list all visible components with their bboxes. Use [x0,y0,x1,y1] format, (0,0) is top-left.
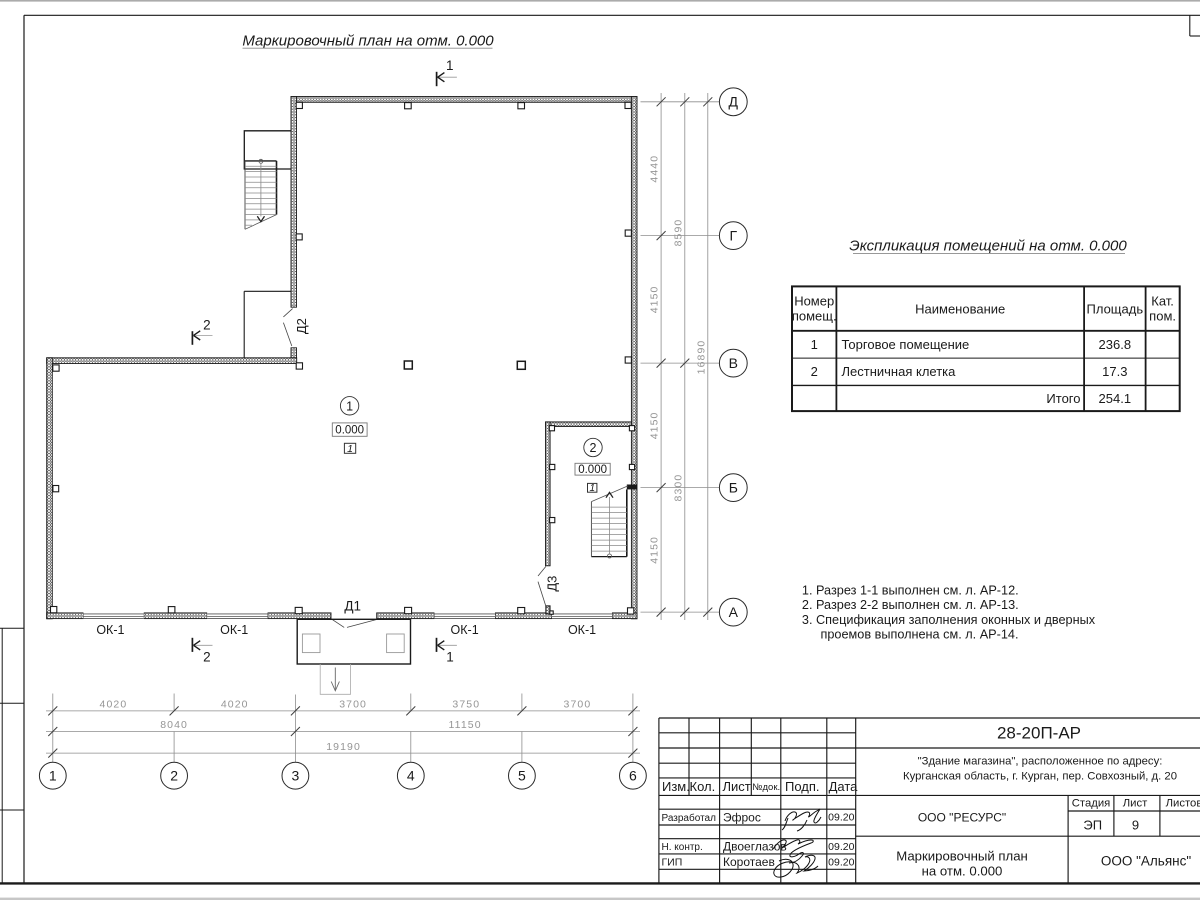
svg-text:проемов выполнена см. л. АР-14: проемов выполнена см. л. АР-14. [821,628,1019,642]
svg-text:ОК-1: ОК-1 [568,623,596,637]
svg-text:Маркировочный план: Маркировочный план [896,849,1028,864]
svg-text:0.000: 0.000 [578,464,607,476]
svg-text:Кат.: Кат. [1151,293,1174,308]
svg-text:В: В [729,355,738,371]
svg-text:Маркировочный план на отм. 0.0: Маркировочный план на отм. 0.000 [242,33,494,50]
svg-text:4020: 4020 [100,699,128,711]
svg-text:Торговое помещение: Торговое помещение [842,337,970,352]
svg-text:3. Спецификация заполнения око: 3. Спецификация заполнения оконных и две… [802,613,1096,627]
svg-text:3700: 3700 [564,699,592,711]
svg-text:ООО "РЕСУРС": ООО "РЕСУРС" [918,810,1006,824]
svg-text:2: 2 [811,364,818,379]
svg-text:Лист: Лист [723,779,751,794]
svg-text:236.8: 236.8 [1099,337,1132,352]
svg-text:3750: 3750 [452,699,480,711]
svg-text:"Здание магазина", расположенн: "Здание магазина", расположенное по адре… [918,756,1163,768]
svg-text:помещ.: помещ. [792,308,837,323]
svg-text:ГИП: ГИП [662,857,683,869]
svg-text:4150: 4150 [649,286,661,314]
svg-text:4020: 4020 [221,699,249,711]
svg-text:1: 1 [346,399,353,413]
svg-text:Д1: Д1 [344,599,361,614]
svg-text:11150: 11150 [449,719,482,731]
svg-text:Кол.: Кол. [690,779,716,794]
svg-text:Лестничная клетка: Лестничная клетка [842,364,957,379]
svg-text:Листов: Листов [1166,798,1200,810]
svg-text:2: 2 [203,650,211,665]
svg-text:Стадия: Стадия [1072,798,1111,810]
svg-text:4: 4 [407,768,415,784]
svg-text:1: 1 [446,650,454,665]
svg-text:16890: 16890 [695,340,707,375]
svg-text:ООО "Альянс": ООО "Альянс" [1101,853,1191,868]
svg-text:09.20: 09.20 [828,812,854,824]
svg-text:Подп.: Подп. [785,779,820,794]
svg-text:8040: 8040 [160,719,188,731]
svg-text:№док.: №док. [752,782,780,793]
svg-text:2. Разрез 2-2 выполнен см. л.: 2. Разрез 2-2 выполнен см. л. АР-13. [802,598,1019,612]
svg-text:3: 3 [292,768,300,784]
svg-text:Курганская область, г. Курган,: Курганская область, г. Курган, пер. Совх… [903,771,1177,783]
svg-text:1: 1 [811,337,818,352]
svg-text:1: 1 [347,443,353,455]
svg-text:Эфрос: Эфрос [723,810,761,824]
svg-text:ЭП: ЭП [1083,818,1102,833]
svg-text:09.20: 09.20 [828,841,854,853]
svg-text:Д: Д [729,94,739,110]
svg-text:Итого: Итого [1046,391,1080,406]
svg-text:Площадь: Площадь [1087,301,1144,316]
svg-text:ОК-1: ОК-1 [96,623,124,637]
svg-text:19190: 19190 [326,741,361,753]
svg-text:5: 5 [518,768,526,784]
svg-text:Г: Г [730,227,738,243]
svg-text:ОК-1: ОК-1 [451,623,479,637]
svg-text:1: 1 [446,58,454,73]
svg-text:2: 2 [170,768,178,784]
svg-text:А: А [729,604,739,620]
svg-text:пом.: пом. [1149,308,1176,323]
svg-text:Изм.: Изм. [662,779,690,794]
svg-text:Экспликация помещений на отм.: Экспликация помещений на отм. 0.000 [849,238,1127,255]
svg-text:Д2: Д2 [294,318,309,334]
svg-text:Д3: Д3 [545,576,560,592]
svg-text:17.3: 17.3 [1102,364,1127,379]
svg-text:9: 9 [1132,818,1139,833]
svg-text:4150: 4150 [649,412,661,440]
svg-text:1: 1 [49,768,57,784]
svg-text:6: 6 [629,768,637,784]
svg-text:8590: 8590 [672,219,684,247]
svg-text:1. Разрез 1-1 выполнен см. л.: 1. Разрез 1-1 выполнен см. л. АР-12. [802,583,1019,597]
svg-text:Разработал: Разработал [662,812,717,824]
svg-text:28-20П-АР: 28-20П-АР [997,724,1081,743]
svg-text:Дата: Дата [829,779,859,794]
svg-text:Наименование: Наименование [915,301,1005,316]
svg-text:8300: 8300 [672,474,684,502]
svg-text:4440: 4440 [649,155,661,183]
svg-text:Б: Б [729,479,738,495]
svg-text:ОК-1: ОК-1 [220,623,248,637]
svg-text:Лист: Лист [1123,798,1148,810]
svg-text:Н. контр.: Н. контр. [662,842,703,853]
svg-text:254.1: 254.1 [1099,391,1132,406]
svg-text:1: 1 [590,483,596,494]
svg-text:Коротаев: Коротаев [723,855,775,869]
svg-text:0.000: 0.000 [335,425,364,437]
svg-text:4150: 4150 [649,536,661,564]
svg-text:Номер: Номер [794,293,834,308]
svg-text:2: 2 [203,318,211,333]
svg-text:09.20: 09.20 [828,856,854,868]
svg-text:2: 2 [590,441,597,455]
svg-text:3700: 3700 [339,699,367,711]
svg-text:на отм. 0.000: на отм. 0.000 [922,864,1003,879]
svg-text:Двоеглазов: Двоеглазов [723,840,787,854]
